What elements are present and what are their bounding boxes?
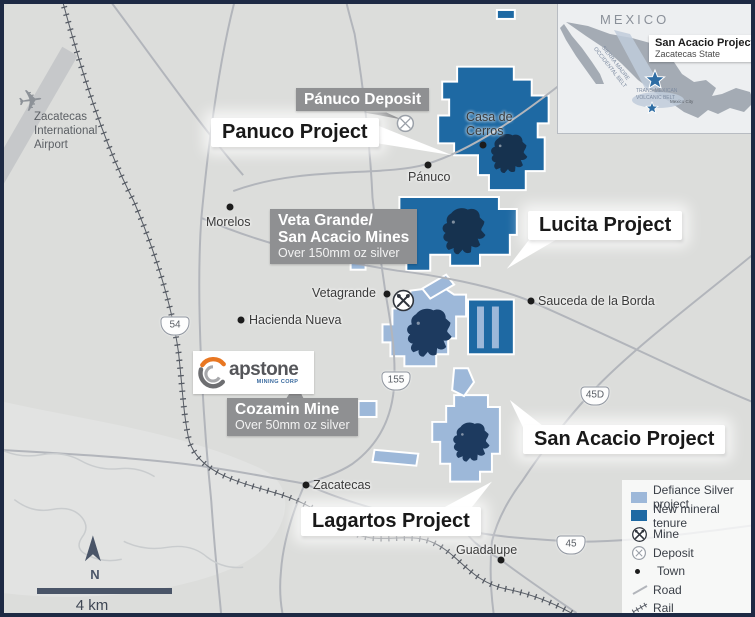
san-acacio-project-label: San Acacio Project xyxy=(523,425,725,454)
lagartos-project-label: Lagartos Project xyxy=(301,507,481,536)
town-label-casa-de-cerros: Casa deCerros xyxy=(466,110,513,138)
cozamin-mine-label: Cozamin Mine Over 50mm oz silver xyxy=(227,398,358,436)
mine-icon xyxy=(393,291,413,311)
town-label-guadalupe: Guadalupe xyxy=(456,543,517,557)
capstone-wordmark: apstone MINING CORP xyxy=(229,360,298,386)
town-dot-panuco xyxy=(425,162,432,169)
town-dot-casa-de-cerros xyxy=(480,142,487,149)
claim-connector xyxy=(452,368,474,396)
panuco-project-label: Panuco Project xyxy=(211,118,379,147)
town-dot-hacienda-nueva xyxy=(238,317,245,324)
rail-line-icon xyxy=(631,602,649,614)
north-label: N xyxy=(86,567,104,582)
legend-label: New mineral tenure xyxy=(653,502,755,530)
claim-square xyxy=(359,401,377,417)
deposit-icon xyxy=(631,545,647,561)
legend-item-road: Road xyxy=(631,581,755,600)
town-dot-sauceda xyxy=(528,298,535,305)
town-dot-icon xyxy=(635,569,640,574)
defiance-swatch-icon xyxy=(631,492,647,503)
legend-item-deposit: Deposit xyxy=(631,544,755,563)
inset-country-label: MEXICO xyxy=(600,12,669,27)
capstone-c-mark xyxy=(197,356,229,390)
tenure-swatch-icon xyxy=(631,510,647,521)
inset-project-callout: San Acacio Project Zacatecas State xyxy=(649,35,755,62)
inset-map: MEXICO SIERRA MADRE OCCIDENTAL BELT TRAN… xyxy=(557,4,755,134)
scale-label: 4 km xyxy=(62,597,122,614)
town-dot-guadalupe xyxy=(498,557,505,564)
town-dot-morelos xyxy=(227,204,234,211)
striped-tenure xyxy=(468,300,514,355)
town-label-zacatecas: Zacatecas xyxy=(313,478,371,492)
town-dot-zacatecas xyxy=(303,482,310,489)
lucita-project-label: Lucita Project xyxy=(528,211,682,240)
legend-item-tenure: New mineral tenure xyxy=(631,507,755,526)
capstone-logo: apstone MINING CORP xyxy=(193,351,314,394)
tenure-square-top xyxy=(497,10,515,19)
legend-label: Deposit xyxy=(653,546,694,560)
inset-city-label: Mexico City xyxy=(670,99,693,104)
town-dot-vetagrande xyxy=(384,291,391,298)
town-label-sauceda: Sauceda de la Borda xyxy=(538,294,655,308)
legend-item-rail: Rail xyxy=(631,599,755,617)
deposit-icon xyxy=(397,115,413,131)
mine-icon xyxy=(631,526,648,543)
town-label-vetagrande: Vetagrande xyxy=(312,286,376,300)
legend-label: Rail xyxy=(653,601,674,615)
legend-label: Mine xyxy=(653,527,679,541)
legend-label: Town xyxy=(657,564,685,578)
map-canvas: ✈ Zacatecas International Airport Panuco… xyxy=(0,0,755,617)
town-label-panuco: Pánuco xyxy=(408,170,450,184)
legend: Defiance Silver project New mineral tenu… xyxy=(622,480,755,617)
legend-label: Road xyxy=(653,583,682,597)
road-line-icon xyxy=(631,584,649,596)
legend-item-town: Town xyxy=(631,562,755,581)
capstone-tagline: MINING CORP xyxy=(229,380,298,386)
town-label-morelos: Morelos xyxy=(206,215,250,229)
town-label-hacienda-nueva: Hacienda Nueva xyxy=(249,313,341,327)
panuco-deposit-label: Pánuco Deposit xyxy=(296,88,429,111)
scale-bar xyxy=(37,588,172,594)
airport-label: Zacatecas International Airport xyxy=(34,110,97,152)
claim-strip-2 xyxy=(373,450,419,466)
veta-grande-label: Veta Grande/ San Acacio Mines Over 150mm… xyxy=(270,209,417,264)
